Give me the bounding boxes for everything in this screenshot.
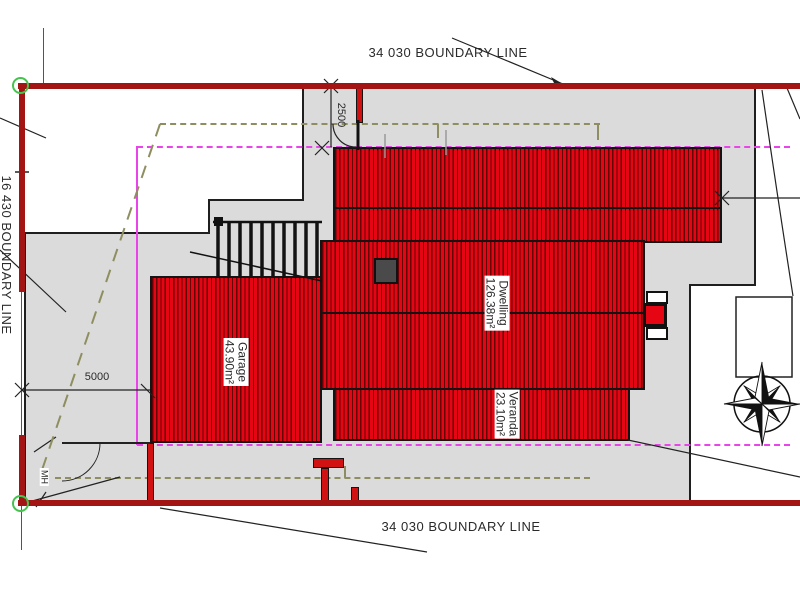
easement-tick-2 — [597, 124, 599, 140]
setback-line-left — [136, 146, 138, 445]
garage-label: Garage 43.90m² — [223, 338, 248, 386]
boundary-label-bottom: 34 030 BOUNDARY LINE — [381, 520, 540, 534]
site-plan-canvas: 34 030 BOUNDARY LINE 34 030 BOUNDARY LIN… — [0, 0, 800, 600]
boundary-label-top: 34 030 BOUNDARY LINE — [368, 46, 527, 60]
dwelling-name: Dwelling — [497, 278, 510, 329]
veranda-roof — [333, 388, 630, 441]
ridge-line-upper — [335, 207, 720, 209]
veranda-label: Veranda 23.10m² — [494, 390, 519, 439]
boundary-label-left: 16 430 BOUNDARY LINE — [0, 175, 13, 334]
boundary-line-bottom — [18, 500, 800, 506]
garage-name: Garage — [236, 340, 249, 384]
boundary-line-left-upper — [19, 83, 25, 292]
lot-line-left-lower-ext — [21, 506, 22, 550]
dwelling-roof-upper — [333, 147, 722, 243]
porch-step-lower — [646, 327, 668, 340]
survey-line-top — [43, 28, 44, 86]
dwelling-area: 126.38m² — [484, 278, 497, 329]
dimension-2500: 2500 — [334, 103, 346, 127]
easement-line-top — [160, 123, 600, 125]
fence-post-front — [356, 86, 363, 123]
fence-wall-rear-h — [313, 458, 344, 468]
porch-landing — [643, 303, 667, 327]
easement-tick-1 — [437, 124, 439, 138]
veranda-area: 23.10m² — [494, 392, 507, 437]
setback-line-bottom — [137, 444, 790, 446]
survey-marker-bottom-icon — [12, 495, 29, 512]
dimension-5000: 5000 — [85, 372, 109, 384]
veranda-name: Veranda — [507, 392, 520, 437]
garage-area: 43.90m² — [223, 340, 236, 384]
easement-tick-3 — [344, 466, 346, 478]
dwelling-roof-main — [320, 240, 645, 390]
dwelling-label: Dwelling 126.38m² — [484, 276, 509, 331]
fence-wall-left-rear — [147, 443, 154, 505]
lot-line-left-mid — [21, 292, 22, 435]
skylight — [374, 258, 398, 284]
survey-marker-top-icon — [12, 77, 29, 94]
boundary-line-top — [18, 83, 800, 89]
ridge-line-main — [322, 312, 643, 314]
manhole-label: MH — [39, 468, 48, 486]
